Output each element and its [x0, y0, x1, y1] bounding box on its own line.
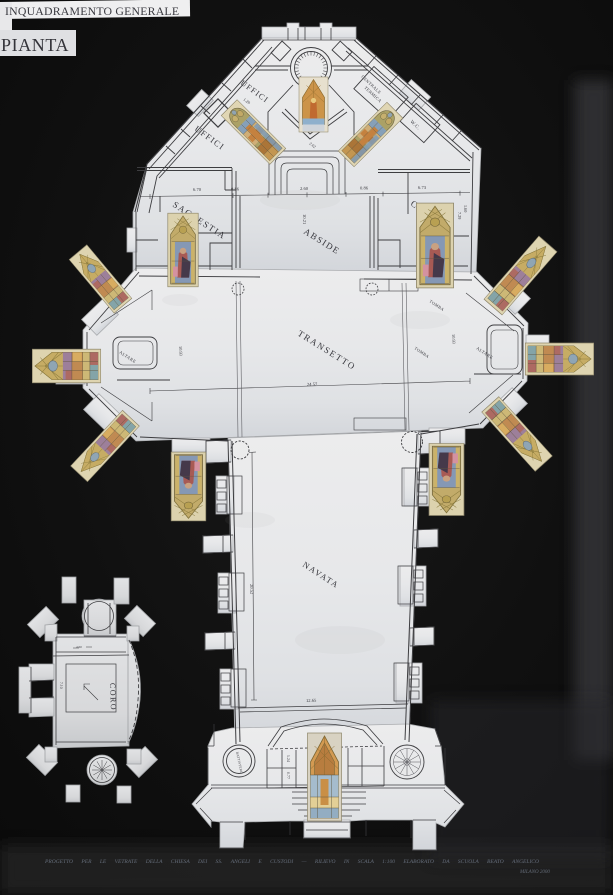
- svg-text:1.24: 1.24: [286, 755, 291, 762]
- svg-text:INQUADRAMENTO GENERALE: INQUADRAMENTO GENERALE: [5, 4, 179, 18]
- svg-text:24.57: 24.57: [307, 382, 318, 387]
- svg-text:10.21: 10.21: [302, 214, 307, 225]
- svg-text:10.93: 10.93: [451, 334, 457, 345]
- svg-text:0.86: 0.86: [360, 186, 369, 191]
- svg-text:10.93: 10.93: [178, 346, 184, 357]
- svg-text:12.65: 12.65: [306, 698, 317, 703]
- svg-text:PROGETTO PER LE VETRATE DELLA: PROGETTO PER LE VETRATE DELLA CHIESA DEI…: [44, 859, 539, 865]
- svg-text:20.52: 20.52: [249, 584, 254, 595]
- svg-text:0.77: 0.77: [286, 772, 291, 779]
- svg-text:6.73: 6.73: [418, 185, 427, 190]
- svg-text:CORO: CORO: [108, 683, 118, 712]
- svg-text:MILANO 2000: MILANO 2000: [519, 870, 550, 875]
- svg-text:PIANTA: PIANTA: [1, 35, 69, 55]
- svg-text:4.60: 4.60: [76, 645, 82, 649]
- svg-text:6.70: 6.70: [193, 187, 202, 192]
- svg-text:7.10: 7.10: [59, 682, 63, 689]
- svg-text:7.29: 7.29: [457, 212, 462, 219]
- svg-text:1.60: 1.60: [463, 205, 468, 212]
